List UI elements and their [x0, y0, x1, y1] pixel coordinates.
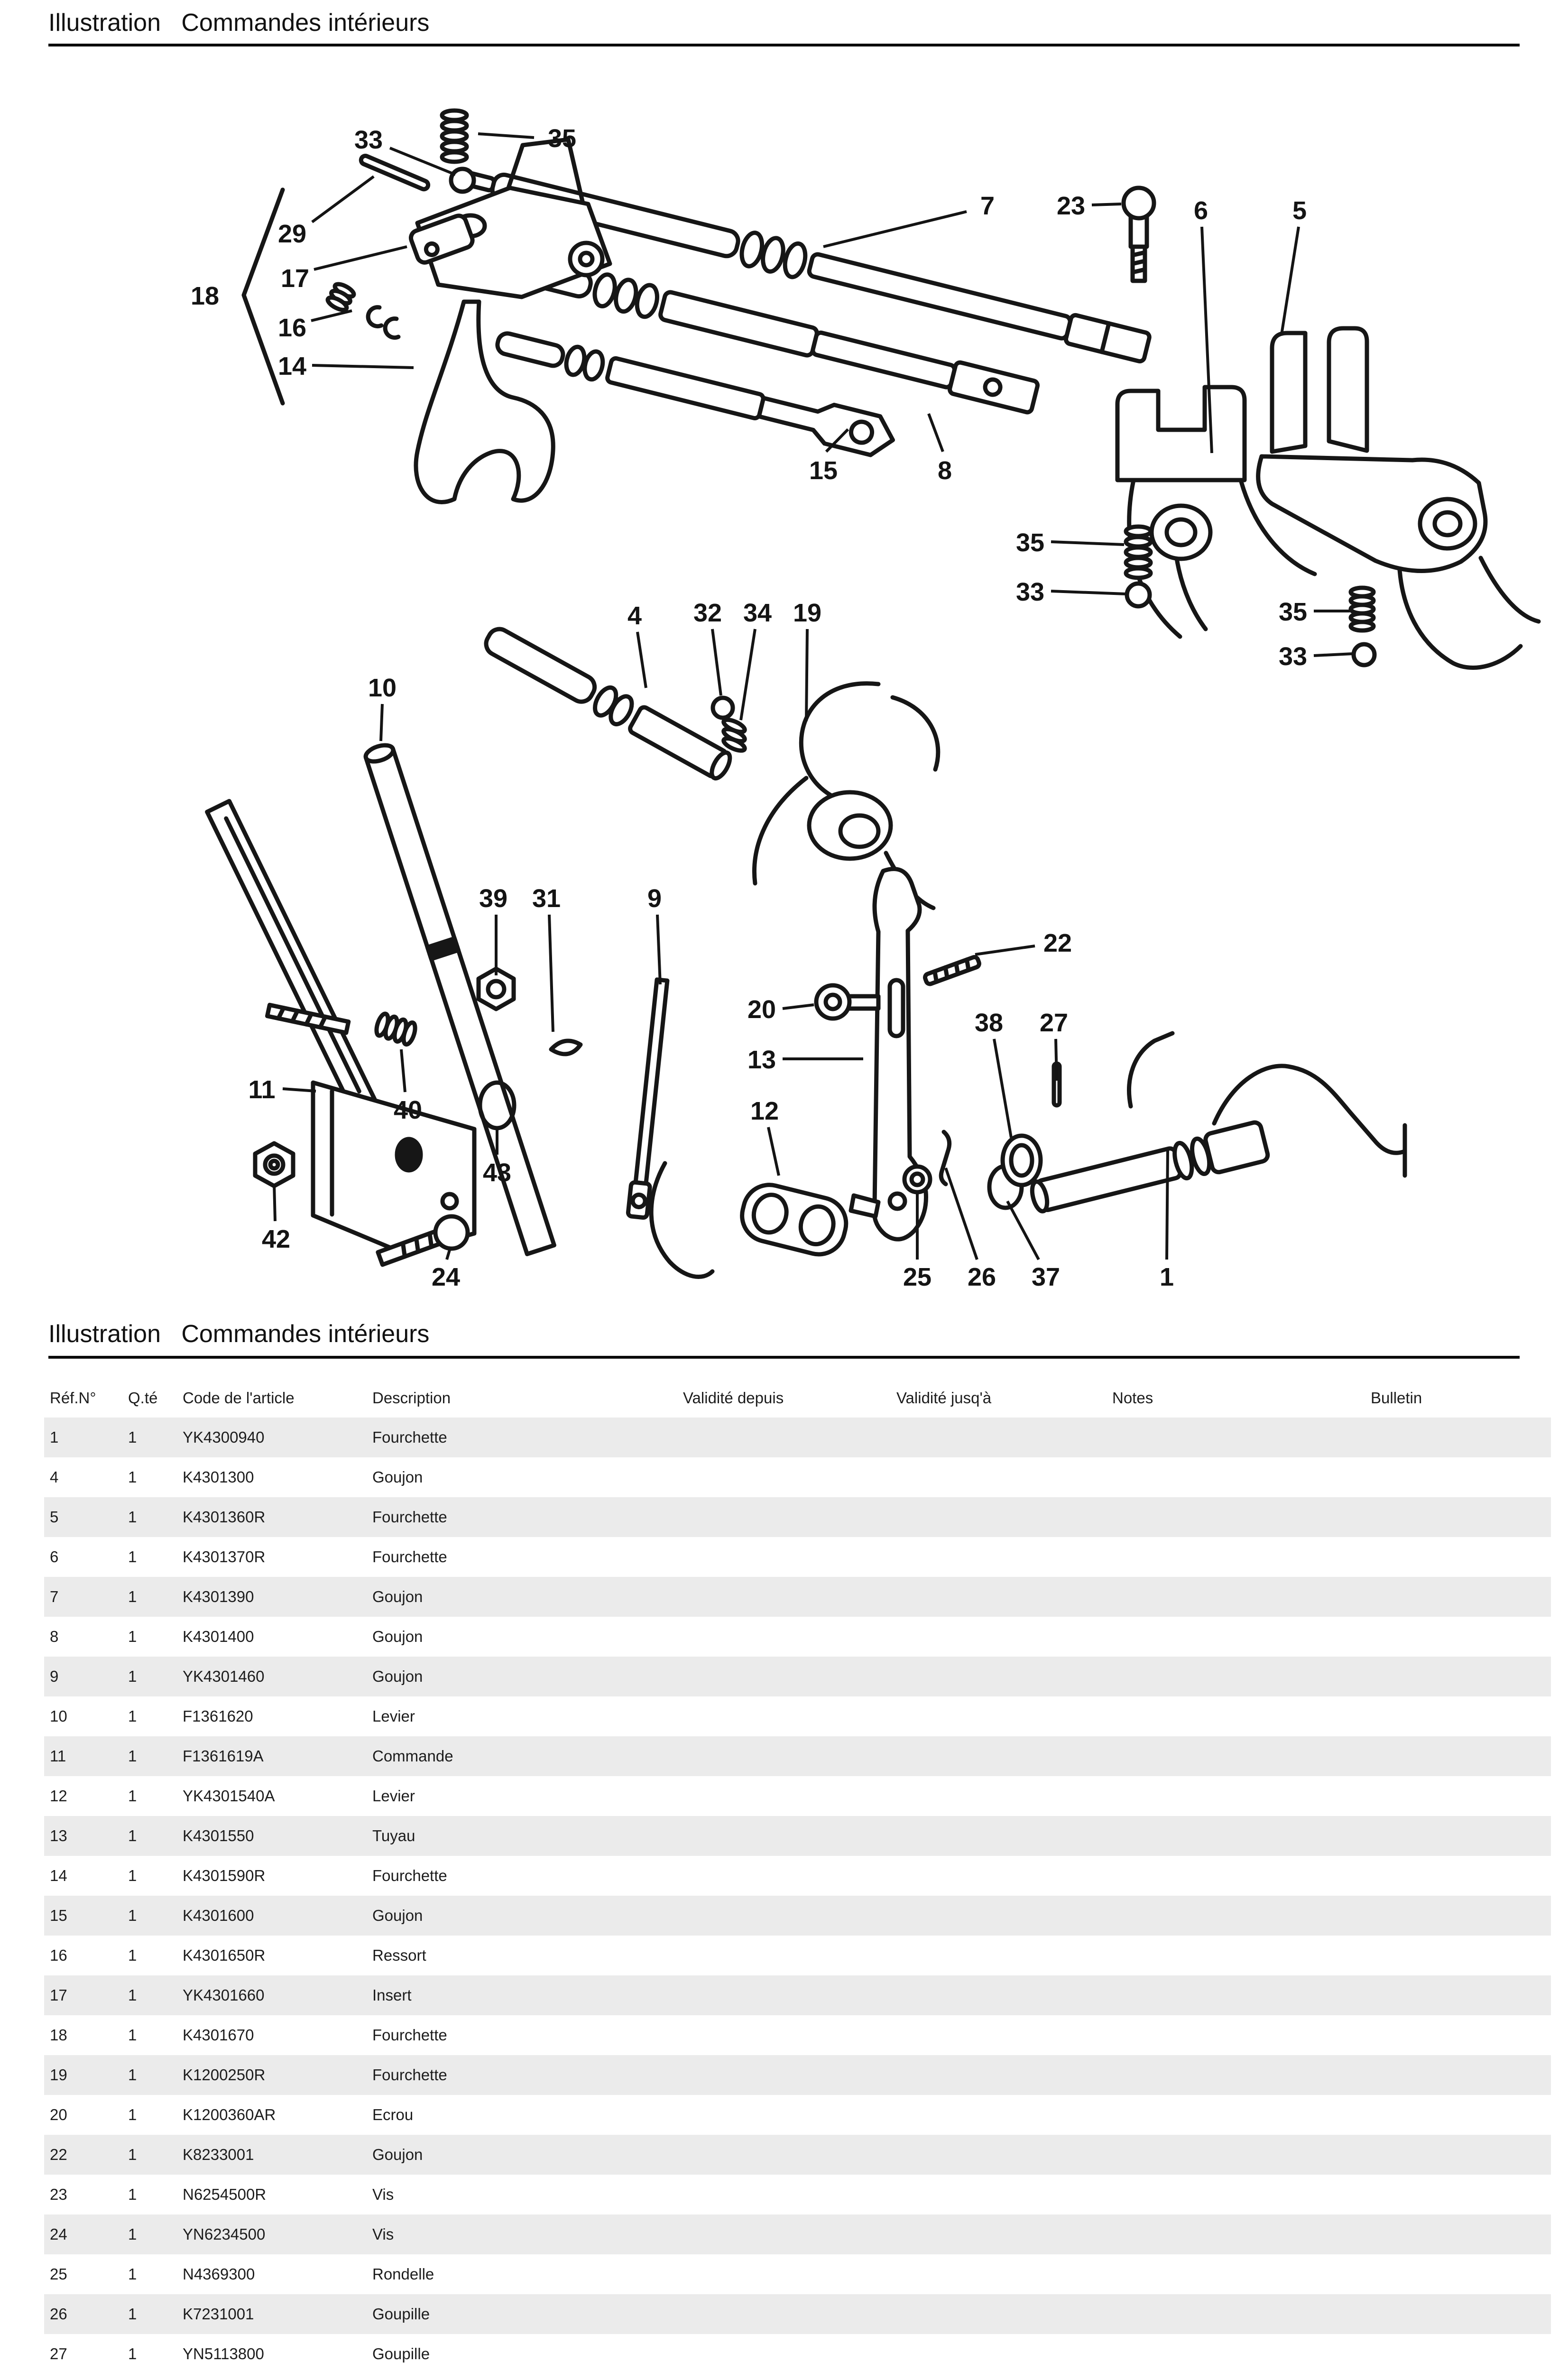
- callout-label-35: 35: [1016, 528, 1044, 557]
- spring-35-top: [442, 111, 467, 162]
- callout-label-9: 9: [647, 884, 662, 913]
- cell-qty: 1: [128, 1945, 137, 1966]
- cell-code: F1361619A: [183, 1746, 264, 1767]
- cell-code: YK4301540A: [183, 1786, 275, 1807]
- table-row: 91YK4301460Goujon: [0, 1657, 1568, 1696]
- callout-label-15: 15: [809, 456, 838, 485]
- cell-qty: 1: [128, 1865, 137, 1886]
- callout-label-10: 10: [368, 674, 397, 702]
- callout-label-37: 37: [1032, 1263, 1060, 1291]
- table-row: 121YK4301540ALevier: [0, 1776, 1568, 1816]
- cell-ref: 13: [50, 1825, 67, 1846]
- cell-qty: 1: [128, 1905, 137, 1926]
- callout-label-43: 43: [483, 1158, 511, 1187]
- cell-desc: Goupille: [372, 2304, 609, 2325]
- callout-leader-19: [806, 629, 807, 721]
- cell-code: K1200360AR: [183, 2104, 276, 2125]
- table-header-row: Réf.N°Q.téCode de l'articleDescriptionVa…: [0, 1388, 1568, 1417]
- cell-qty: 1: [128, 1666, 137, 1687]
- link-12-levier: [737, 1179, 878, 1260]
- callout-leader-4: [637, 632, 646, 688]
- callout-leader-10: [381, 704, 382, 741]
- spring-16: [326, 282, 355, 313]
- callout-label-20: 20: [747, 995, 776, 1024]
- cell-desc: Levier: [372, 1706, 609, 1727]
- cell-ref: 9: [50, 1666, 58, 1687]
- cell-ref: 20: [50, 2104, 67, 2125]
- cell-code: K7231001: [183, 2304, 254, 2325]
- table-row: 181K4301670Fourchette: [0, 2015, 1568, 2055]
- callout-label-26: 26: [968, 1263, 996, 1291]
- callout-leader-17: [314, 247, 407, 269]
- table-row: 191K1200250RFourchette: [0, 2055, 1568, 2095]
- table-row: 261K7231001Goupille: [0, 2294, 1568, 2334]
- callout-leader-16: [311, 311, 352, 321]
- cell-ref: 25: [50, 2264, 67, 2285]
- callout-leader-22: [975, 946, 1035, 954]
- table-row: 161K4301650RRessort: [0, 1936, 1568, 1975]
- column-header: Réf.N°: [50, 1388, 96, 1408]
- cell-desc: Vis: [372, 2224, 609, 2245]
- cell-qty: 1: [128, 2184, 137, 2205]
- table-row: 171YK4301660Insert: [0, 1975, 1568, 2015]
- exploded-parts-diagram: 3335291817161472365158353335334323419103…: [0, 71, 1568, 1324]
- callout-label-33: 33: [354, 126, 383, 154]
- cell-ref: 11: [50, 1746, 66, 1767]
- cell-code: K4301590R: [183, 1865, 265, 1886]
- cell-desc: Fourchette: [372, 1507, 609, 1528]
- cell-qty: 1: [128, 1586, 137, 1607]
- callout-label-8: 8: [938, 456, 952, 485]
- callout-leader-29: [312, 176, 374, 222]
- cell-ref: 4: [50, 1467, 58, 1488]
- cell-code: YN6234500: [183, 2224, 265, 2245]
- cell-code: K4301370R: [183, 1547, 265, 1567]
- callout-leader-20: [783, 1005, 814, 1009]
- cell-desc: Goujon: [372, 2144, 609, 2165]
- callout-label-12: 12: [750, 1097, 779, 1125]
- cell-code: K4301300: [183, 1467, 254, 1488]
- fork-1: [1028, 1033, 1405, 1217]
- cell-desc: Commande: [372, 1746, 609, 1767]
- fork-19: [754, 684, 938, 908]
- divider-table: [48, 1356, 1520, 1359]
- commande-11: [207, 801, 474, 1253]
- cell-ref: 22: [50, 2144, 67, 2165]
- callout-leader-32: [712, 629, 721, 695]
- callout-label-1: 1: [1160, 1263, 1174, 1291]
- cell-code: K8233001: [183, 2144, 254, 2165]
- cell-ref: 12: [50, 1786, 67, 1807]
- table-row: 71K4301390Goujon: [0, 1577, 1568, 1617]
- table-row: 271YN5113800Goupille: [0, 2334, 1568, 2372]
- callout-label-7: 7: [980, 192, 995, 220]
- cell-ref: 23: [50, 2184, 67, 2205]
- callout-label-35: 35: [548, 124, 576, 153]
- table-row: 221K8233001Goujon: [0, 2135, 1568, 2175]
- callout-leader-8: [929, 414, 943, 452]
- callout-leader-35: [1051, 542, 1124, 545]
- cell-qty: 1: [128, 1985, 137, 2006]
- parts-table: 11YK4300940Fourchette41K4301300Goujon51K…: [0, 1418, 1568, 2372]
- cell-qty: 1: [128, 2264, 137, 2285]
- clavette-31: [551, 1041, 581, 1054]
- cell-qty: 1: [128, 2144, 137, 2165]
- cell-qty: 1: [128, 1786, 137, 1807]
- callout-label-34: 34: [743, 599, 772, 627]
- callout-leader-40: [401, 1049, 405, 1092]
- cell-ref: 8: [50, 1626, 58, 1647]
- cell-desc: Goujon: [372, 1905, 609, 1926]
- cell-desc: Goujon: [372, 1586, 609, 1607]
- callout-label-6: 6: [1194, 196, 1208, 225]
- ball-33-right: [1354, 644, 1374, 665]
- cell-qty: 1: [128, 1626, 137, 1647]
- callout-leader-23: [1092, 204, 1121, 205]
- spring-40: [374, 1012, 417, 1046]
- column-header: Bulletin: [1371, 1388, 1422, 1408]
- callout-leader-34: [741, 629, 755, 720]
- cell-desc: Fourchette: [372, 1427, 609, 1448]
- cell-ref: 5: [50, 1507, 58, 1528]
- table-row: 11YK4300940Fourchette: [0, 1418, 1568, 1457]
- callout-leader-9: [657, 915, 660, 984]
- cell-code: K4301360R: [183, 1507, 265, 1528]
- column-header: Validité jusq'à: [896, 1388, 991, 1408]
- callout-label-35: 35: [1279, 598, 1307, 626]
- callout-label-32: 32: [693, 599, 722, 627]
- callout-leader-31: [549, 915, 553, 1032]
- cell-code: N6254500R: [183, 2184, 266, 2205]
- table-row: 241YN6234500Vis: [0, 2214, 1568, 2254]
- cell-ref: 1: [50, 1427, 58, 1448]
- cell-code: YK4300940: [183, 1427, 265, 1448]
- callout-leader-35: [478, 134, 534, 138]
- cell-desc: Insert: [372, 1985, 609, 2006]
- cell-qty: 1: [128, 2025, 137, 2046]
- table-row: 81K4301400Goujon: [0, 1617, 1568, 1657]
- callout-label-40: 40: [394, 1096, 422, 1124]
- cell-code: K4301390: [183, 1586, 254, 1607]
- cell-desc: Tuyau: [372, 1825, 609, 1846]
- cell-ref: 14: [50, 1865, 67, 1886]
- ball-33-top: [451, 169, 474, 192]
- cell-qty: 1: [128, 2104, 137, 2125]
- cell-qty: 1: [128, 1467, 137, 1488]
- cell-desc: Goujon: [372, 1666, 609, 1687]
- cell-qty: 1: [128, 1706, 137, 1727]
- rod-9-goujon: [628, 979, 672, 1218]
- callout-label-42: 42: [262, 1225, 290, 1253]
- cell-qty: 1: [128, 1507, 137, 1528]
- page-title: Illustration Commandes intérieurs: [48, 9, 429, 37]
- cell-qty: 1: [128, 1825, 137, 1846]
- claw-arc: [651, 1163, 712, 1277]
- callout-label-17: 17: [281, 264, 309, 293]
- cell-qty: 1: [128, 2065, 137, 2085]
- table-row: 41K4301300Goujon: [0, 1457, 1568, 1497]
- cell-qty: 1: [128, 1746, 137, 1767]
- cell-desc: Ecrou: [372, 2104, 609, 2125]
- callout-leader-14: [312, 365, 414, 368]
- callout-leader-37: [1007, 1201, 1039, 1260]
- cell-code: K4301600: [183, 1905, 254, 1926]
- callout-label-24: 24: [432, 1263, 460, 1291]
- cell-ref: 27: [50, 2344, 67, 2364]
- cell-qty: 1: [128, 2344, 137, 2364]
- cell-desc: Fourchette: [372, 2025, 609, 2046]
- cell-ref: 19: [50, 2065, 67, 2085]
- screw-20-ecrou: [816, 985, 878, 1019]
- cell-ref: 18: [50, 2025, 67, 2046]
- cell-desc: Goujon: [372, 1467, 609, 1488]
- cell-desc: Rondelle: [372, 2264, 609, 2285]
- nut-42: [255, 1143, 293, 1186]
- callout-leader-33: [1314, 654, 1353, 656]
- cell-desc: Levier: [372, 1786, 609, 1807]
- callout-label-18: 18: [191, 282, 219, 310]
- bolt-23-vis: [1124, 188, 1154, 281]
- table-row: 111F1361619ACommande: [0, 1736, 1568, 1776]
- callout-label-29: 29: [278, 220, 306, 248]
- callout-label-33: 33: [1279, 642, 1307, 671]
- table-row: 101F1361620Levier: [0, 1696, 1568, 1736]
- cell-code: K4301550: [183, 1825, 254, 1846]
- ball-32: [713, 698, 733, 718]
- callout-leader-7: [823, 212, 967, 247]
- cell-code: K4301400: [183, 1626, 254, 1647]
- cell-code: YN5113800: [183, 2344, 264, 2364]
- table-row: 251N4369300Rondelle: [0, 2254, 1568, 2294]
- washer-25: [904, 1167, 930, 1192]
- callout-label-4: 4: [627, 602, 642, 630]
- table-row: 151K4301600Goujon: [0, 1896, 1568, 1936]
- callout-leader-12: [768, 1127, 779, 1176]
- callout-label-13: 13: [747, 1046, 776, 1074]
- table-row: 231N6254500RVis: [0, 2175, 1568, 2214]
- cell-ref: 15: [50, 1905, 67, 1926]
- cell-qty: 1: [128, 1427, 137, 1448]
- cell-code: K4301650R: [183, 1945, 265, 1966]
- callout-leader-26: [946, 1168, 977, 1260]
- stud-22-goujon: [924, 956, 980, 985]
- callout-label-31: 31: [532, 884, 561, 913]
- callout-label-19: 19: [793, 599, 821, 627]
- callout-label-38: 38: [975, 1009, 1003, 1037]
- table-row: 51K4301360RFourchette: [0, 1497, 1568, 1537]
- cell-code: YK4301660: [183, 1985, 265, 2006]
- cell-qty: 1: [128, 2224, 137, 2245]
- callout-leader-5: [1282, 227, 1299, 334]
- cell-desc: Ressort: [372, 1945, 609, 1966]
- column-header: Q.té: [128, 1388, 157, 1408]
- callout-leader-33: [1051, 591, 1126, 594]
- washer-38-rondelle: [1003, 1136, 1041, 1185]
- rod-4-goujon: [481, 623, 734, 782]
- cell-desc: Fourchette: [372, 1865, 609, 1886]
- callout-label-16: 16: [278, 314, 306, 342]
- cell-desc: Fourchette: [372, 1547, 609, 1567]
- section-title: Illustration Commandes intérieurs: [48, 1320, 429, 1348]
- spring-35-mid: [1126, 527, 1151, 578]
- callout-label-27: 27: [1040, 1009, 1068, 1037]
- table-row: 201K1200360AREcrou: [0, 2095, 1568, 2135]
- cell-code: F1361620: [183, 1706, 253, 1727]
- table-row: 141K4301590RFourchette: [0, 1856, 1568, 1896]
- cell-code: N4369300: [183, 2264, 255, 2285]
- cell-desc: Goujon: [372, 1626, 609, 1647]
- callout-label-22: 22: [1043, 929, 1072, 957]
- column-header: Notes: [1112, 1388, 1153, 1408]
- cell-desc: Vis: [372, 2184, 609, 2205]
- table-row: 131K4301550Tuyau: [0, 1816, 1568, 1856]
- cell-ref: 6: [50, 1547, 58, 1567]
- ball-33-mid: [1127, 584, 1150, 606]
- callout-label-33: 33: [1016, 578, 1044, 606]
- cell-code: K4301670: [183, 2025, 254, 2046]
- cell-ref: 7: [50, 1586, 58, 1607]
- cell-ref: 17: [50, 1985, 67, 2006]
- cell-qty: 1: [128, 1547, 137, 1567]
- callout-label-11: 11: [248, 1075, 275, 1104]
- cell-ref: 24: [50, 2224, 67, 2245]
- cell-desc: Fourchette: [372, 2065, 609, 2085]
- column-header: Validité depuis: [683, 1388, 784, 1408]
- cell-ref: 16: [50, 1945, 67, 1966]
- callout-label-23: 23: [1057, 192, 1085, 220]
- bracket-18: [244, 190, 283, 403]
- divider-top: [48, 44, 1520, 46]
- cell-qty: 1: [128, 2304, 137, 2325]
- callout-label-14: 14: [278, 352, 306, 380]
- column-header: Code de l'article: [183, 1388, 295, 1408]
- callout-leader-38: [994, 1039, 1011, 1138]
- callout-leader-1: [1167, 1150, 1168, 1260]
- cell-code: YK4301460: [183, 1666, 265, 1687]
- column-header: Description: [372, 1388, 609, 1408]
- cell-ref: 10: [50, 1706, 67, 1727]
- callout-label-39: 39: [479, 884, 507, 913]
- spring-35-right: [1351, 588, 1374, 630]
- cell-code: K1200250R: [183, 2065, 265, 2085]
- callout-label-25: 25: [903, 1263, 932, 1291]
- callout-leader-42: [274, 1184, 275, 1221]
- table-row: 61K4301370RFourchette: [0, 1537, 1568, 1577]
- callout-label-5: 5: [1292, 196, 1307, 225]
- callout-leader-27: [1056, 1039, 1057, 1081]
- cell-ref: 26: [50, 2304, 67, 2325]
- cell-desc: Goupille: [372, 2344, 609, 2364]
